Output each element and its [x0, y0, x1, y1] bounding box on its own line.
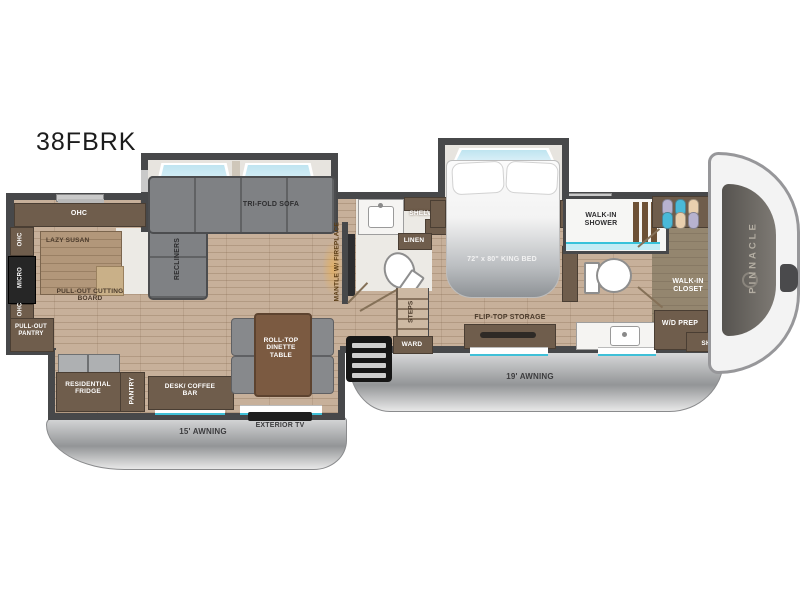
sofa-slide-wall-top — [141, 153, 338, 160]
master-toilet-bowl — [596, 258, 632, 293]
recliners-label: RECLINERS — [174, 227, 182, 291]
walk-in-shower-label: WALK-IN SHOWER — [572, 212, 630, 228]
bed-pillow-right — [505, 161, 559, 196]
bedroom-dresser — [562, 246, 578, 302]
linen-label: LINEN — [398, 237, 430, 244]
ohc-top-label: OHC — [44, 210, 114, 218]
micro-label: MICRO — [18, 257, 25, 297]
shower-glass — [566, 242, 660, 250]
flip-top-slot — [480, 332, 536, 338]
exterior-tv-label: EXTERIOR TV — [234, 422, 326, 430]
brand-logo: PINNACLE — [749, 209, 760, 305]
mid-bath-sink — [368, 206, 394, 228]
cutting-board-label: PULL-OUT CUTTING BOARD — [48, 288, 132, 303]
walk-in-closet-label: WALK-IN CLOSET — [662, 278, 714, 294]
bed-slide-wall-top — [438, 138, 569, 145]
steps-label: STEPS — [407, 294, 414, 330]
mid-bath-faucet — [378, 203, 383, 208]
bed-pillow-left — [451, 161, 505, 196]
nightstand-left — [430, 200, 446, 228]
bed-slide-wall-left — [438, 138, 445, 200]
floorplan-canvas: 38FBRK 19' AWNING 15' AWNING EXTERIOR TV… — [0, 0, 800, 600]
hanging-clothes-item — [675, 212, 686, 229]
closet-top-hangers — [662, 199, 702, 227]
master-faucet — [622, 332, 627, 337]
ohc-top-handle — [58, 199, 104, 203]
awning-19-label: 19' AWNING — [470, 372, 590, 381]
fridge-label: RESIDENTIAL FRIDGE — [58, 381, 118, 396]
king-bed-label: 72" x 80" KING BED — [466, 256, 538, 264]
shower-tile-2 — [642, 202, 648, 242]
ohc-upper-label: OHC — [18, 224, 25, 254]
fireplace-tv — [348, 234, 355, 296]
bench-window-strip — [470, 347, 548, 356]
ward-label: WARD — [393, 341, 431, 348]
entry-steps — [346, 336, 392, 382]
fridge-door-split — [87, 354, 89, 372]
window-sofa-slide-left — [141, 170, 148, 192]
master-bath-window-strip — [598, 347, 656, 356]
dinette-label: ROLL-TOP DINETTE TABLE — [257, 337, 305, 359]
shower-tile-1 — [633, 202, 639, 242]
pantry-label: PANTRY — [128, 371, 135, 411]
mantle-fireplace-label: MANTLE W/ FIREPLACE — [333, 220, 340, 304]
bed-slide-wall-right — [562, 138, 569, 200]
hanging-clothes-item — [688, 212, 699, 229]
dinette-slide-wall-left — [48, 350, 55, 420]
hitch-pin — [780, 264, 798, 292]
model-title: 38FBRK — [36, 128, 136, 157]
flip-top-storage-label: FLIP-TOP STORAGE — [460, 314, 560, 322]
desk-coffee-label: DESK/ COFFEE BAR — [160, 383, 220, 398]
pull-out-pantry-label: PULL-OUT PANTRY — [12, 324, 50, 338]
trifold-sofa-label: TRI-FOLD SOFA — [216, 201, 326, 209]
hanging-clothes-item — [662, 212, 673, 229]
dinette-slide-wall-right — [338, 350, 345, 420]
wd-prep-label: W/D PREP — [660, 320, 700, 328]
exterior-tv — [248, 412, 312, 421]
fridge-doors — [58, 354, 120, 374]
lazy-susan-label: LAZY SUSAN — [42, 237, 90, 244]
awning-19ft — [348, 352, 724, 412]
